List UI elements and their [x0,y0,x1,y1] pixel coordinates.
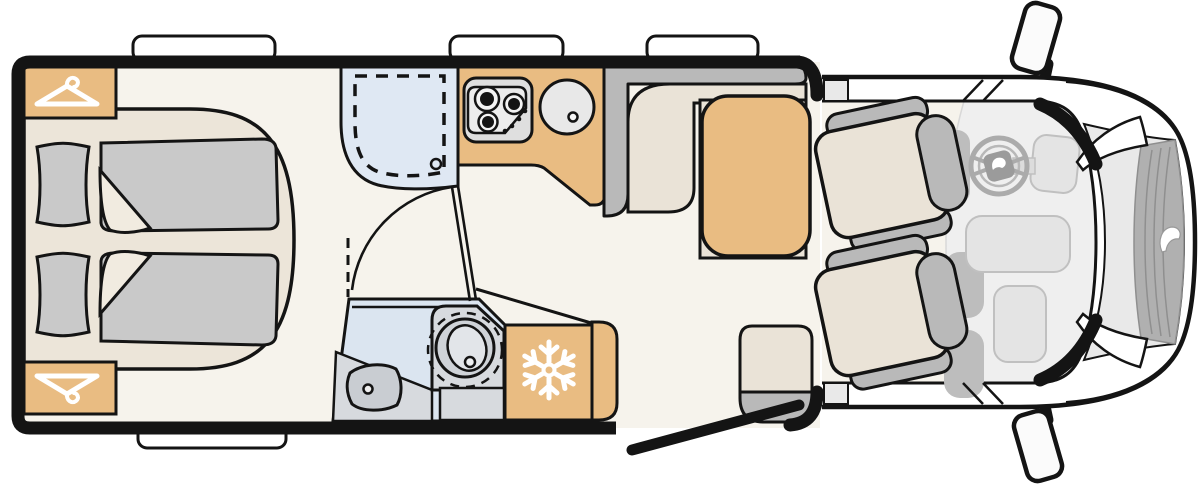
shower-floor [341,63,458,189]
dash-panel [1029,134,1081,195]
motorhome-floorplan-page: Motorhome floor plan, top view [0,0,1200,484]
motorhome-floorplan: Motorhome floor plan, top view [0,0,1200,484]
fridge-cabinet [505,325,592,420]
shower-cubicle [341,63,458,189]
wardrobe-top [24,66,116,118]
hob-icon [464,78,532,142]
step-seat [740,326,812,392]
wardrobe-cabinet [24,66,116,118]
fridge [505,322,617,420]
toilet-base [440,388,504,420]
fridge-side-panel [592,322,617,420]
b-pillar-bottom [824,383,848,404]
toilet [428,306,504,420]
mirror-head [1011,408,1064,483]
wardrobe-bottom [24,362,116,414]
washbasin [347,365,401,410]
mirror-head [1009,0,1062,75]
sink-bowl [540,80,594,134]
b-pillar-top [824,80,848,101]
burner [482,116,494,128]
burner [508,98,520,110]
grille [1134,140,1184,344]
basin-drain [364,385,373,394]
pillow-right-bed [37,253,89,336]
dinette-table [702,96,810,256]
toilet-flush [465,357,475,367]
basin-bowl [347,365,401,410]
wardrobe-cabinet [24,362,116,414]
sink-drain [569,113,578,122]
center-console [966,216,1070,272]
kitchen-sink [540,80,594,134]
dash-panel [994,286,1046,362]
burner [480,92,494,106]
pillow-left-bed [37,143,89,226]
